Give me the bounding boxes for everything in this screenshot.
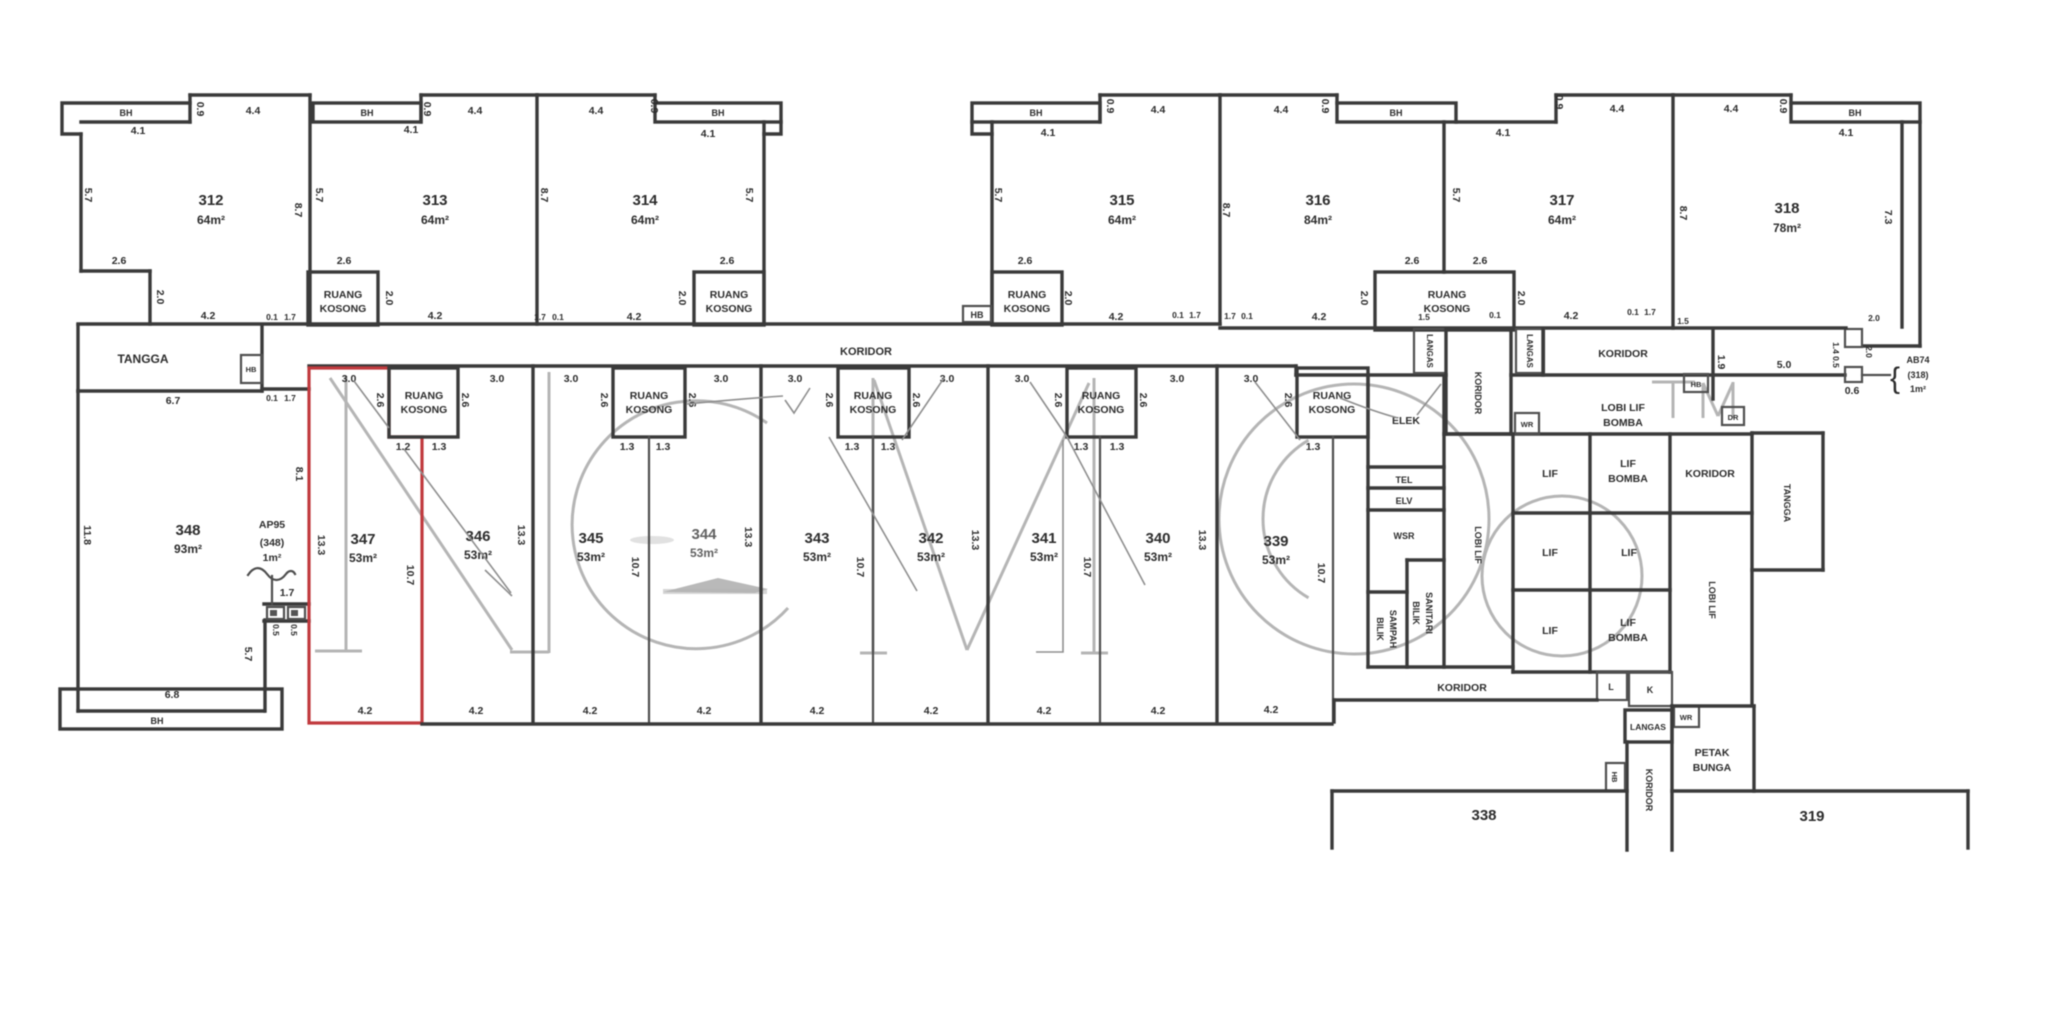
svg-text:1.7: 1.7: [284, 393, 296, 403]
svg-text:4.2: 4.2: [1037, 705, 1052, 717]
svg-text:3.0: 3.0: [490, 373, 505, 385]
svg-text:78m²: 78m²: [1773, 221, 1801, 235]
svg-text:0.1: 0.1: [1627, 307, 1639, 317]
svg-text:BH: BH: [1030, 108, 1043, 118]
svg-text:4.2: 4.2: [428, 310, 443, 322]
svg-text:RUANG: RUANG: [630, 390, 669, 402]
svg-text:4.2: 4.2: [1151, 705, 1166, 717]
svg-text:8.7: 8.7: [292, 203, 304, 218]
svg-text:1.3: 1.3: [1110, 441, 1125, 453]
svg-text:2.6: 2.6: [459, 393, 471, 408]
svg-text:4.1: 4.1: [1839, 127, 1854, 139]
svg-text:4.4: 4.4: [589, 105, 604, 117]
svg-text:RUANG: RUANG: [854, 390, 893, 402]
svg-text:2.0: 2.0: [154, 290, 166, 305]
svg-text:53m²: 53m²: [1262, 553, 1290, 567]
svg-text:KORIDOR: KORIDOR: [840, 346, 892, 358]
svg-text:RUANG: RUANG: [324, 289, 363, 301]
svg-text:13.3: 13.3: [515, 525, 527, 546]
svg-text:LIF: LIF: [1620, 617, 1636, 629]
svg-text:316: 316: [1305, 192, 1330, 209]
svg-text:13.3: 13.3: [315, 535, 327, 556]
svg-text:RUANG: RUANG: [1428, 289, 1467, 301]
svg-text:5.0: 5.0: [1777, 359, 1792, 371]
svg-text:1.7: 1.7: [280, 587, 295, 599]
svg-text:64m²: 64m²: [1108, 213, 1136, 227]
svg-text:BOMBA: BOMBA: [1608, 632, 1648, 644]
svg-text:2.0: 2.0: [1515, 291, 1527, 306]
svg-text:53m²: 53m²: [349, 551, 377, 565]
svg-text:5.7: 5.7: [1450, 188, 1462, 203]
svg-text:TANGGA: TANGGA: [1782, 484, 1792, 523]
svg-text:(318): (318): [1907, 370, 1928, 380]
svg-text:4.1: 4.1: [131, 125, 146, 137]
svg-text:313: 313: [422, 192, 447, 209]
svg-text:53m²: 53m²: [1030, 550, 1058, 564]
svg-text:BH: BH: [1390, 108, 1403, 118]
svg-text:KORIDOR: KORIDOR: [1598, 348, 1648, 360]
svg-text:2.6: 2.6: [910, 393, 922, 408]
svg-text:LIF: LIF: [1621, 547, 1637, 559]
svg-text:319: 319: [1799, 808, 1824, 825]
svg-text:1.3: 1.3: [656, 441, 671, 453]
svg-text:WR: WR: [1680, 713, 1693, 722]
svg-text:KORIDOR: KORIDOR: [1685, 468, 1735, 480]
svg-text:RUANG: RUANG: [405, 390, 444, 402]
svg-text:1.3: 1.3: [845, 441, 860, 453]
svg-text:4.4: 4.4: [246, 105, 261, 117]
svg-text:2.6: 2.6: [686, 393, 698, 408]
svg-text:5.7: 5.7: [313, 188, 325, 203]
svg-text:HB: HB: [1610, 772, 1619, 783]
svg-text:340: 340: [1145, 530, 1170, 547]
svg-text:348: 348: [175, 522, 200, 539]
svg-text:4.2: 4.2: [627, 311, 642, 323]
svg-text:8.1: 8.1: [293, 467, 305, 482]
svg-text:2.6: 2.6: [720, 255, 735, 267]
svg-text:2.0: 2.0: [1358, 291, 1370, 306]
svg-text:53m²: 53m²: [690, 546, 718, 560]
svg-text:344: 344: [691, 526, 717, 543]
svg-text:BH: BH: [361, 108, 374, 118]
svg-text:4.2: 4.2: [1109, 311, 1124, 323]
svg-text:64m²: 64m²: [421, 213, 449, 227]
svg-text:64m²: 64m²: [1548, 213, 1576, 227]
svg-text:345: 345: [578, 530, 603, 547]
svg-text:8.7: 8.7: [1220, 203, 1232, 218]
svg-text:10.7: 10.7: [854, 557, 866, 578]
svg-text:3.0: 3.0: [788, 373, 803, 385]
svg-text:LOBI LIF: LOBI LIF: [1707, 581, 1717, 619]
svg-text:0.9: 0.9: [648, 99, 660, 114]
svg-text:2.0: 2.0: [1868, 313, 1880, 323]
svg-text:64m²: 64m²: [197, 213, 225, 227]
svg-text:RUANG: RUANG: [1008, 289, 1047, 301]
svg-text:1.7: 1.7: [534, 312, 546, 322]
svg-text:1.3: 1.3: [1306, 441, 1321, 453]
svg-text:1.5: 1.5: [1677, 316, 1689, 326]
svg-text:AB74: AB74: [1906, 355, 1929, 365]
svg-text:SAMPAH: SAMPAH: [1388, 610, 1398, 648]
svg-text:0.9: 0.9: [421, 102, 433, 117]
svg-text:1.4: 1.4: [1831, 342, 1841, 354]
svg-text:KORIDOR: KORIDOR: [1644, 769, 1654, 812]
svg-text:13.3: 13.3: [969, 530, 981, 551]
svg-text:LIF: LIF: [1542, 547, 1558, 559]
svg-text:11.8: 11.8: [81, 525, 93, 545]
svg-text:KORIDOR: KORIDOR: [1473, 372, 1483, 415]
svg-text:4.2: 4.2: [810, 705, 825, 717]
svg-text:3.0: 3.0: [714, 373, 729, 385]
svg-text:0.9: 0.9: [194, 102, 206, 117]
svg-text:338: 338: [1471, 807, 1496, 824]
svg-text:1.7: 1.7: [1224, 311, 1236, 321]
svg-text:5.7: 5.7: [242, 647, 254, 662]
svg-text:KOSONG: KOSONG: [1424, 303, 1471, 315]
svg-text:4.2: 4.2: [469, 705, 484, 717]
svg-text:BILIK: BILIK: [1411, 601, 1421, 625]
svg-text:3.0: 3.0: [1015, 373, 1030, 385]
svg-text:317: 317: [1549, 192, 1574, 209]
svg-text:BILIK: BILIK: [1375, 617, 1385, 641]
svg-text:318: 318: [1774, 200, 1799, 217]
svg-text:AP95: AP95: [259, 519, 285, 531]
svg-text:2.6: 2.6: [374, 393, 386, 408]
svg-text:0.1: 0.1: [1489, 310, 1501, 320]
svg-text:2.6: 2.6: [1018, 255, 1033, 267]
svg-text:0.1: 0.1: [1172, 310, 1184, 320]
svg-text:K: K: [1647, 685, 1654, 695]
svg-text:SANITARI: SANITARI: [1424, 592, 1434, 634]
svg-text:LANGAS: LANGAS: [1525, 334, 1534, 368]
svg-text:1m²: 1m²: [263, 552, 282, 564]
svg-text:0.5: 0.5: [289, 624, 299, 636]
svg-text:3.0: 3.0: [342, 373, 357, 385]
svg-text:0.9: 0.9: [1104, 99, 1116, 114]
svg-text:4.2: 4.2: [201, 310, 216, 322]
svg-text:KOSONG: KOSONG: [1004, 303, 1051, 315]
svg-text:L: L: [1608, 682, 1614, 692]
svg-text:1m²: 1m²: [1910, 384, 1926, 394]
svg-text:RUANG: RUANG: [710, 289, 749, 301]
svg-text:4.1: 4.1: [1041, 127, 1056, 139]
svg-text:TANGGA: TANGGA: [117, 352, 168, 366]
svg-text:BH: BH: [712, 108, 725, 118]
svg-text:KOSONG: KOSONG: [626, 404, 673, 416]
svg-text:53m²: 53m²: [577, 550, 605, 564]
svg-text:1.3: 1.3: [1074, 441, 1089, 453]
svg-text:BH: BH: [1849, 108, 1862, 118]
svg-text:0.1: 0.1: [552, 312, 564, 322]
svg-text:KOSONG: KOSONG: [401, 404, 448, 416]
svg-text:HB: HB: [1691, 380, 1702, 389]
svg-text:1.7: 1.7: [1189, 310, 1201, 320]
svg-text:53m²: 53m²: [464, 548, 492, 562]
svg-text:1.7: 1.7: [1644, 307, 1656, 317]
svg-text:0.1: 0.1: [1241, 311, 1253, 321]
svg-text:2.6: 2.6: [598, 393, 610, 408]
svg-text:7.3: 7.3: [1882, 210, 1894, 225]
svg-text:KOSONG: KOSONG: [320, 303, 367, 315]
svg-text:4.2: 4.2: [697, 705, 712, 717]
svg-text:HB: HB: [971, 310, 984, 320]
svg-text:2.6: 2.6: [112, 255, 127, 267]
svg-text:4.4: 4.4: [1610, 103, 1625, 115]
svg-text:1.3: 1.3: [432, 441, 447, 453]
svg-text:93m²: 93m²: [174, 542, 202, 556]
svg-text:LANGAS: LANGAS: [1630, 722, 1666, 732]
svg-text:0.9: 0.9: [1777, 99, 1789, 114]
svg-text:LOBI LIF: LOBI LIF: [1473, 526, 1483, 564]
svg-text:ELV: ELV: [1396, 496, 1413, 506]
svg-text:DR: DR: [1728, 413, 1739, 422]
svg-text:4.4: 4.4: [1151, 104, 1166, 116]
svg-text:KORIDOR: KORIDOR: [1437, 682, 1487, 694]
svg-text:KOSONG: KOSONG: [850, 404, 897, 416]
svg-text:0.5: 0.5: [1831, 356, 1841, 368]
svg-text:53m²: 53m²: [917, 550, 945, 564]
svg-text:4.4: 4.4: [468, 105, 483, 117]
svg-text:5.7: 5.7: [82, 188, 94, 203]
svg-text:4.1: 4.1: [404, 124, 419, 136]
svg-text:6.8: 6.8: [165, 689, 180, 701]
svg-text:LANGAS: LANGAS: [1425, 334, 1434, 368]
svg-text:LIF: LIF: [1620, 458, 1636, 470]
svg-text:LIF: LIF: [1542, 468, 1558, 480]
svg-text:2.6: 2.6: [1473, 255, 1488, 267]
svg-text:339: 339: [1263, 533, 1288, 550]
svg-text:0.5: 0.5: [271, 624, 281, 636]
svg-text:4.2: 4.2: [1564, 310, 1579, 322]
svg-text:312: 312: [198, 192, 223, 209]
svg-text:4.1: 4.1: [1496, 127, 1511, 139]
svg-text:4.2: 4.2: [583, 705, 598, 717]
svg-text:4.1: 4.1: [701, 128, 716, 140]
svg-text:HB: HB: [246, 365, 257, 374]
svg-text:2.0: 2.0: [383, 291, 395, 306]
svg-text:1.2: 1.2: [396, 441, 411, 453]
svg-text:KOSONG: KOSONG: [706, 303, 753, 315]
svg-text:10.7: 10.7: [629, 557, 641, 578]
svg-text:8.7: 8.7: [1677, 206, 1689, 221]
svg-text:TEL: TEL: [1396, 475, 1414, 485]
svg-text:3.0: 3.0: [1170, 373, 1185, 385]
svg-text:2.6: 2.6: [1137, 393, 1149, 408]
svg-text:BOMBA: BOMBA: [1603, 417, 1643, 429]
svg-text:0.6: 0.6: [1845, 385, 1860, 397]
svg-text:2.6: 2.6: [1052, 393, 1064, 408]
svg-text:315: 315: [1109, 192, 1134, 209]
svg-text:13.3: 13.3: [742, 527, 754, 548]
svg-text:53m²: 53m²: [1144, 550, 1172, 564]
svg-text:0.1: 0.1: [266, 393, 278, 403]
svg-text:1.3: 1.3: [881, 441, 896, 453]
svg-text:13.3: 13.3: [1196, 530, 1208, 551]
svg-text:1.9: 1.9: [1715, 355, 1727, 370]
svg-text:0.9: 0.9: [1319, 99, 1331, 114]
svg-text:5.7: 5.7: [992, 188, 1004, 203]
svg-text:WSR: WSR: [1394, 531, 1415, 541]
svg-text:1.3: 1.3: [620, 441, 635, 453]
svg-text:LIF: LIF: [1542, 625, 1558, 637]
svg-text:4.2: 4.2: [924, 705, 939, 717]
svg-text:2.0: 2.0: [1864, 346, 1874, 358]
svg-text:342: 342: [918, 530, 943, 547]
svg-text:PETAK: PETAK: [1695, 747, 1730, 759]
svg-text:2.0: 2.0: [1062, 291, 1074, 306]
svg-text:KOSONG: KOSONG: [1309, 404, 1356, 416]
svg-text:10.7: 10.7: [1081, 557, 1093, 578]
svg-text:RUANG: RUANG: [1082, 390, 1121, 402]
svg-text:0.9: 0.9: [1553, 95, 1565, 110]
svg-text:(348): (348): [260, 537, 285, 549]
svg-text:10.7: 10.7: [404, 565, 416, 586]
svg-text:3.0: 3.0: [940, 373, 955, 385]
svg-text:2.6: 2.6: [1405, 255, 1420, 267]
svg-text:2.6: 2.6: [823, 393, 835, 408]
svg-text:64m²: 64m²: [631, 213, 659, 227]
svg-text:5.7: 5.7: [743, 188, 755, 203]
svg-text:WR: WR: [1521, 420, 1534, 429]
svg-text:3.0: 3.0: [564, 373, 579, 385]
svg-text:2.6: 2.6: [1282, 393, 1294, 408]
svg-text:1.7: 1.7: [284, 312, 296, 322]
svg-text:6.7: 6.7: [166, 395, 181, 407]
svg-text:314: 314: [632, 192, 658, 209]
svg-text:53m²: 53m²: [803, 550, 831, 564]
svg-text:0.1: 0.1: [266, 312, 278, 322]
svg-text:347: 347: [350, 531, 375, 548]
svg-text:8.7: 8.7: [538, 188, 550, 203]
svg-text:4.2: 4.2: [358, 705, 373, 717]
svg-text:2.0: 2.0: [676, 291, 688, 306]
svg-text:{: {: [1890, 362, 1900, 395]
svg-text:BOMBA: BOMBA: [1608, 473, 1648, 485]
svg-text:LOBI LIF: LOBI LIF: [1601, 402, 1645, 414]
svg-text:10.7: 10.7: [1315, 563, 1327, 584]
svg-text:KOSONG: KOSONG: [1078, 404, 1125, 416]
svg-text:4.4: 4.4: [1724, 103, 1739, 115]
svg-text:341: 341: [1031, 530, 1056, 547]
svg-text:4.2: 4.2: [1264, 704, 1279, 716]
svg-text:BH: BH: [120, 108, 133, 118]
svg-text:4.2: 4.2: [1312, 311, 1327, 323]
svg-text:84m²: 84m²: [1304, 213, 1332, 227]
svg-text:4.4: 4.4: [1274, 104, 1289, 116]
svg-text:2.6: 2.6: [337, 255, 352, 267]
svg-text:343: 343: [804, 530, 829, 547]
svg-text:BH: BH: [151, 716, 164, 726]
svg-text:BUNGA: BUNGA: [1693, 762, 1732, 774]
